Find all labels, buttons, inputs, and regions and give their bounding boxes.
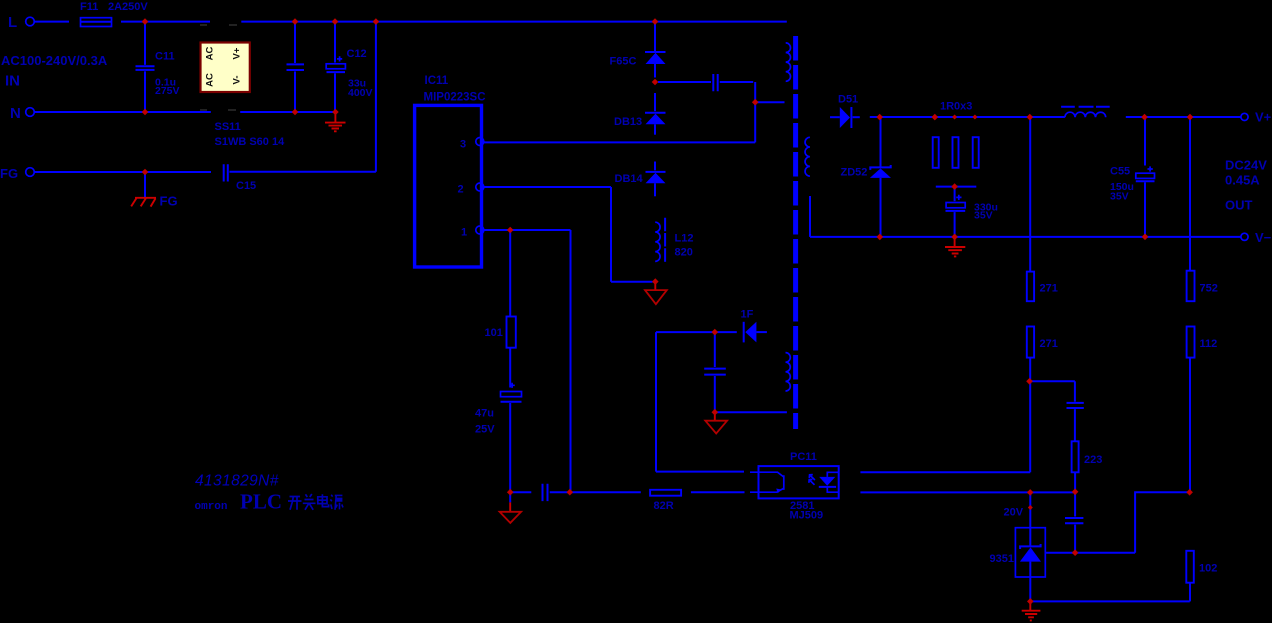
svg-text:20V: 20V [1004,507,1024,519]
svg-text:L: L [8,14,17,31]
svg-text:102: 102 [1199,562,1217,574]
svg-text:DB13: DB13 [614,116,642,128]
svg-text:DC24V: DC24V [1225,158,1267,173]
svg-text:752: 752 [1200,282,1218,294]
svg-text:ZD52: ZD52 [841,167,868,179]
svg-text:AC: AC [205,73,216,87]
svg-text:S1WB S60 14: S1WB S60 14 [215,136,286,148]
svg-text:PLC: PLC [240,490,282,514]
svg-text:271: 271 [1040,282,1058,294]
svg-text:V-: V- [232,76,243,85]
svg-text:C12: C12 [347,48,367,60]
svg-text:35V: 35V [1110,191,1129,203]
svg-text:SS11: SS11 [215,121,241,133]
svg-text:N: N [10,105,21,122]
svg-text:4131829N#: 4131829N# [195,473,279,490]
svg-text:F65C: F65C [610,56,637,68]
svg-text:0.45A: 0.45A [1225,173,1260,188]
svg-text:DB14: DB14 [615,173,644,185]
svg-text:C55: C55 [1110,166,1130,178]
svg-text:1: 1 [461,227,467,239]
svg-text:F11: F11 [80,1,98,13]
svg-text:AC100-240V/0.3A: AC100-240V/0.3A [1,53,108,68]
svg-text:IN: IN [5,73,20,90]
svg-text:MIP0223SC: MIP0223SC [424,92,486,104]
svg-text:271: 271 [1040,338,1058,350]
svg-text:V−: V− [1255,230,1272,245]
svg-text:9351: 9351 [990,553,1014,565]
svg-text:223: 223 [1084,454,1102,466]
svg-text:L12: L12 [675,232,694,244]
svg-text:820: 820 [675,246,693,258]
svg-text:2A250V: 2A250V [108,1,148,13]
svg-text:101: 101 [485,327,503,339]
svg-text:omron: omron [195,501,228,513]
svg-text:IC11: IC11 [425,75,449,87]
svg-text:V+: V+ [232,47,243,59]
svg-text:112: 112 [1200,338,1218,350]
svg-text:AC: AC [205,47,216,61]
svg-text:82R: 82R [654,500,674,512]
svg-text:3: 3 [460,139,466,151]
svg-text:D51: D51 [838,94,858,106]
svg-text:C11: C11 [155,51,175,63]
svg-text:400V: 400V [348,87,373,99]
svg-text:25V: 25V [475,423,495,435]
svg-text:V+: V+ [1255,110,1272,125]
svg-text:1R0x3: 1R0x3 [940,101,972,113]
svg-text:2: 2 [458,184,464,196]
svg-text:FG: FG [160,194,178,209]
svg-text:C15: C15 [236,180,256,192]
svg-text:MJ509: MJ509 [790,510,824,522]
svg-text:1F: 1F [741,309,754,321]
svg-text:275V: 275V [155,85,180,97]
svg-text:PC11: PC11 [790,451,817,463]
svg-text:OUT: OUT [1225,198,1253,213]
svg-text:47u: 47u [475,408,494,420]
svg-text:FG: FG [0,166,18,181]
svg-text:35V: 35V [974,210,993,222]
